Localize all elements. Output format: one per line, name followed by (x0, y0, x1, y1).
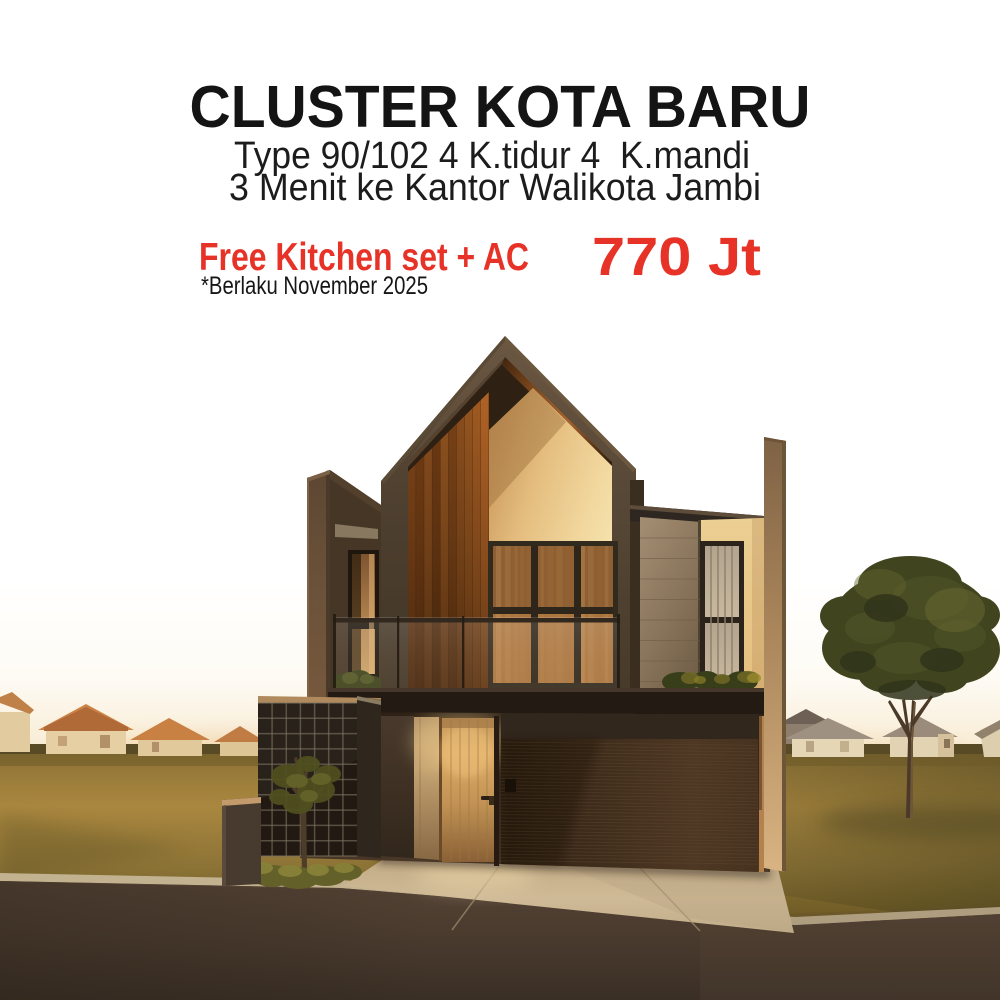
svg-text:*Berlaku November 2025: *Berlaku November 2025 (201, 272, 428, 300)
svg-text:770 Jt: 770 Jt (592, 227, 761, 287)
svg-text:CLUSTER KOTA BARU: CLUSTER KOTA BARU (190, 74, 811, 140)
svg-text:3 Menit ke Kantor Walikota Jam: 3 Menit ke Kantor Walikota Jambi (229, 167, 761, 209)
